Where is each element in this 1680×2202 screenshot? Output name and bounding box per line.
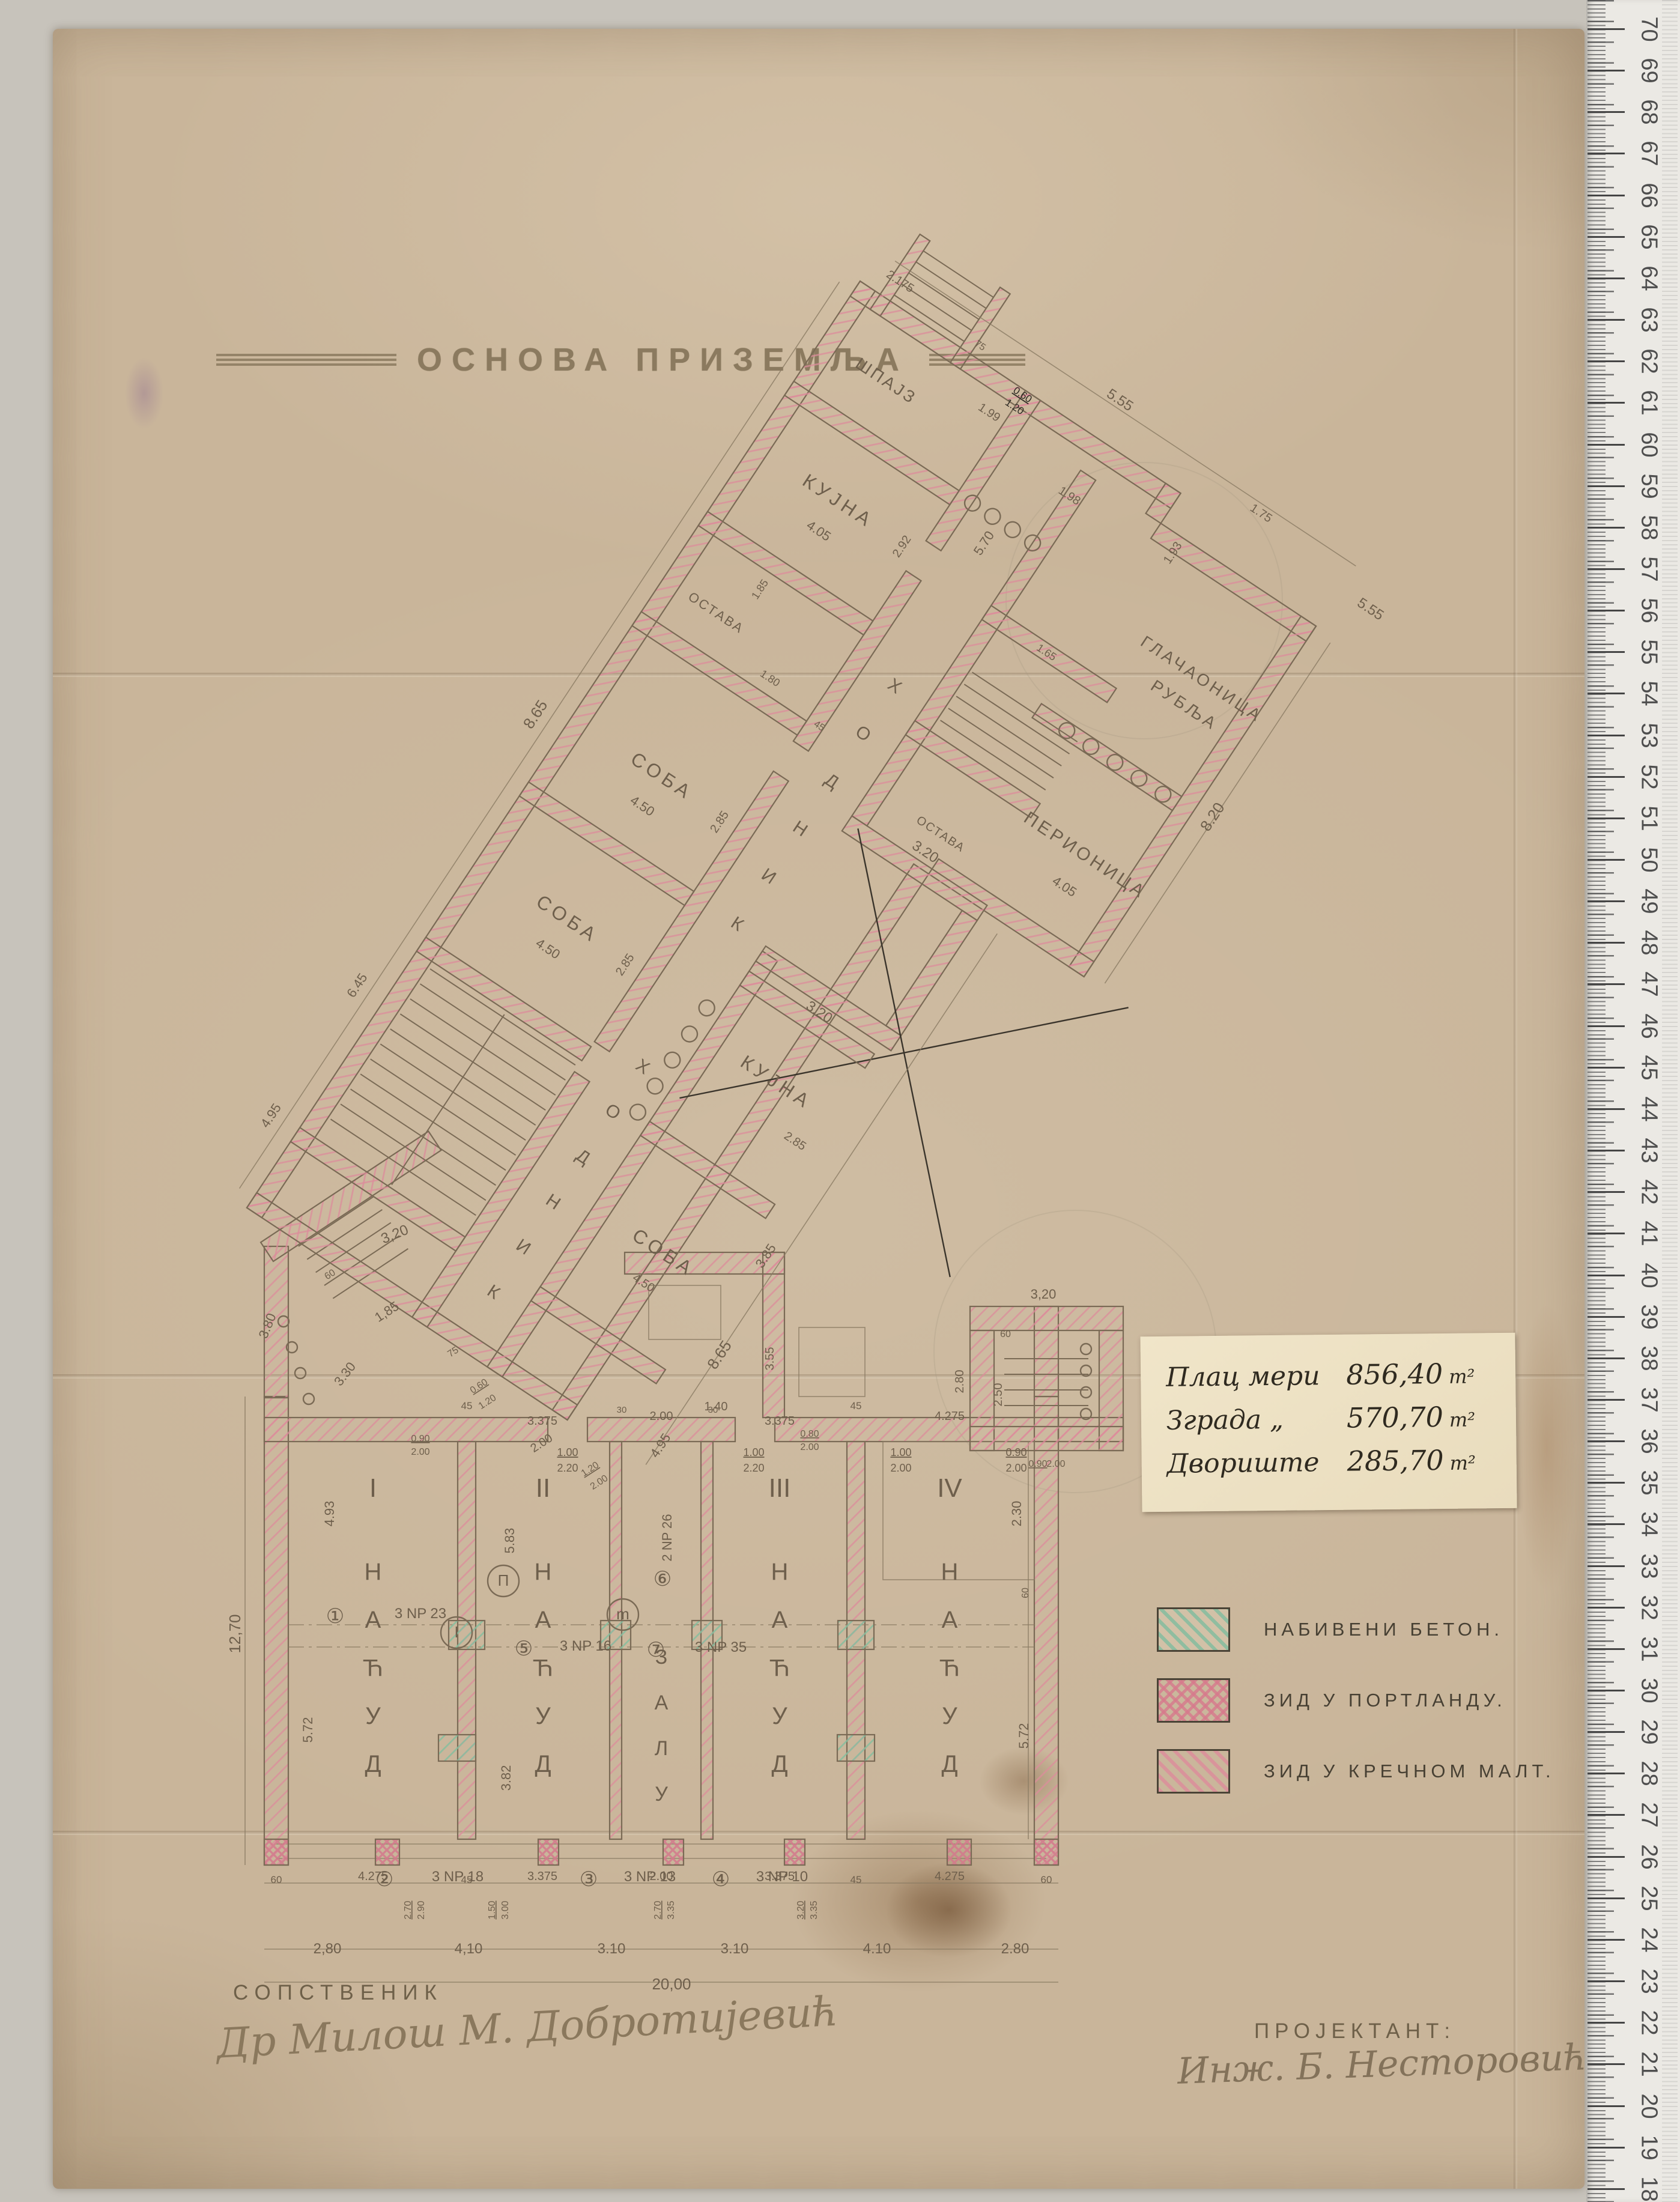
plan-dimension: 3.82 [499,1765,514,1791]
shop-number: I [369,1473,377,1503]
plan-dimension: 3.30 [331,1359,359,1389]
ruler-cm-tick [1588,1897,1625,1899]
room-label: Н [542,1190,564,1213]
area-unit: m² [1449,1408,1476,1431]
ruler-number: 56 [1636,593,1662,629]
ruler-number: 19 [1636,2129,1662,2165]
ruler-number: 57 [1636,551,1662,587]
room-label: Д [535,1751,551,1777]
area-value: 285,70 [1347,1444,1444,1478]
plan-dimension: 3 NP 23 [395,1606,446,1622]
ruler-number: 35 [1636,1465,1662,1501]
area-row: Двориште 285,70 m² [1166,1443,1496,1479]
ruler-cm-tick [1588,153,1625,154]
ruler-cm-tick [1588,651,1625,653]
plan-dimension: 2.00 [650,1410,673,1423]
plan-dimension: 4.95 [258,1100,284,1130]
ruler-number: 31 [1636,1631,1662,1667]
ruler-number: 64 [1636,260,1662,296]
plan-dimension: 1.50 [487,1900,497,1919]
plan-dimension: 0.60 [469,1377,490,1396]
ruler-cm-tick [1588,2188,1625,2190]
room-label: А [365,1607,381,1633]
plan-dimension: 5.72 [1016,1723,1031,1749]
ruler-cm-tick [1588,610,1625,611]
legend-label: ЗИД У ПОРТЛАНДУ. [1264,1690,1506,1711]
ruler-number: 47 [1636,966,1662,1002]
plan-dimension: 60 [1041,1874,1052,1885]
room-label: Ћ [363,1655,383,1681]
ruler-number: 52 [1636,759,1662,795]
ruler-cm-tick [1588,360,1625,362]
plan-dimension: ⑥ [654,1568,672,1591]
legend-swatch-lime [1157,1749,1230,1794]
ruler-number: 66 [1636,177,1662,213]
legend-label: НАБИВЕНИ БЕТОН. [1264,1619,1503,1640]
plan-dimension: ⑤ [515,1637,533,1660]
plan-dimension: 5.83 [502,1528,517,1554]
room-label: У [655,1783,668,1806]
plan-dimension: I [454,1623,458,1641]
legend-row: ЗИД У КРЕЧНОМ МАЛТ. [1157,1749,1555,1794]
room-label: Н [771,1559,789,1585]
room-label: К [484,1281,503,1303]
room-label: Х [632,1055,654,1079]
plan-dimension: 5.72 [300,1717,315,1743]
plan-dimension: 4.05 [804,517,834,544]
scanned-floor-plan-page: ОСНОВА ПРИЗЕМЉА [0,0,1680,2202]
ruler-number: 55 [1636,634,1662,670]
room-label: Н [789,817,811,840]
plan-dimension: 60 [323,1267,337,1282]
plan-dimension: 1.00 [743,1446,764,1458]
plan-dimension: 3.375 [765,1415,795,1428]
plan-dimension: 1.99 [976,401,1003,425]
plan-dimension: 8.65 [703,1337,735,1372]
ruler-number: 67 [1636,136,1662,172]
plan-dimension: 0.90 [1005,1446,1026,1458]
ruler-cm-tick [1588,1191,1625,1193]
room-label: Н [365,1559,382,1585]
ruler-number: 40 [1636,1257,1662,1293]
shop-number: IV [937,1473,962,1503]
plan-dimension: 30 [617,1405,627,1415]
ruler-cm-tick [1588,111,1625,113]
plan-dimension: 1.00 [557,1446,578,1458]
ruler-cm-tick [1588,1773,1625,1774]
ruler-number: 26 [1636,1839,1662,1875]
ruler-number: 46 [1636,1008,1662,1044]
ruler-number: 54 [1636,676,1662,712]
plan-dimension: 2.00 [589,1473,610,1492]
ruler-cm-tick [1588,70,1625,71]
ruler-cm-tick [1588,2063,1625,2065]
ruler-number: 28 [1636,1756,1662,1792]
room-label: Л [655,1737,668,1760]
ruler-number: 36 [1636,1424,1662,1460]
ruler-number: 61 [1636,385,1662,421]
plan-dimension: ① [326,1605,344,1628]
plan-dimension: 1.00 [890,1446,911,1458]
plan-dimension: 3.375 [527,1415,557,1428]
room-label: К [727,913,747,935]
ruler-cm-tick [1588,2022,1625,2024]
plan-dimension: 1.80 [758,667,782,689]
plan-dimension: 2.00 [890,1462,911,1474]
ruler-cm-tick [1588,1108,1625,1110]
ruler-number: 37 [1636,1382,1662,1418]
plan-dimension: ③ [580,1868,598,1891]
plan-dimension: 3.375 [765,1870,795,1883]
area-label: Двориште [1166,1447,1347,1479]
area-unit: m² [1449,1365,1475,1388]
ruler-cm-tick [1588,1399,1625,1401]
ruler-cm-tick [1588,942,1625,944]
ruler-number: 25 [1636,1880,1662,1916]
plan-dimension: 8.65 [520,697,551,732]
ruler-cm-tick [1588,983,1625,985]
plan-dimension: 3.20 [796,1900,806,1919]
plan-dimension: 3 NP 16 [560,1638,611,1654]
plan-dimension: 2.00 [411,1447,429,1457]
plan-dimension: 4.93 [322,1501,337,1527]
room-label: У [535,1703,551,1729]
shop-number: II [536,1473,550,1503]
ruler-cm-tick [1588,527,1625,529]
ruler-cm-tick [1588,28,1625,30]
plan-dimension: 4.275 [935,1870,965,1883]
plan-dimension: 2.00 [1005,1462,1026,1474]
plan-dimension: 3.10 [721,1941,749,1957]
plan-dimension: 4.05 [1050,873,1080,899]
room-label: У [772,1703,787,1729]
area-value: 570,70 [1347,1401,1444,1434]
area-label: Зграда „ [1166,1404,1347,1436]
ruler-cm-tick [1588,1565,1625,1567]
scanner-ruler: 7069686766656463626160595857565554535251… [1586,0,1680,2202]
plan-dimension: 3.10 [598,1941,626,1957]
plan-dimension: 2.20 [557,1462,578,1474]
plan-dimension: 2.80 [1001,1941,1030,1957]
ruler-number: 62 [1636,344,1662,380]
ruler-number: 30 [1636,1673,1662,1709]
ruler-number: 21 [1636,2046,1662,2082]
plan-dimension: 3,20 [378,1222,410,1248]
ruler-number: 42 [1636,1174,1662,1210]
plan-dimension: 2.85 [781,1129,808,1153]
ruler-number: 53 [1636,717,1662,753]
room-label: ОСТАВА [685,589,747,637]
ruler-cm-tick [1588,1939,1625,1941]
ruler-number: 50 [1636,842,1662,878]
plan-dimension: 4.275 [358,1870,388,1883]
ruler-number: 68 [1636,94,1662,130]
plan-dimension: 2.85 [708,808,732,836]
room-label: Д [365,1751,381,1777]
plan-dimension: 6.45 [344,971,370,1001]
ruler-number: 48 [1636,925,1662,961]
ruler-number: 33 [1636,1548,1662,1584]
legend-row: НАБИВЕНИ БЕТОН. [1157,1607,1555,1652]
room-label: А [942,1607,958,1633]
plan-dimension: 45 [461,1874,473,1885]
ruler-number: 24 [1636,1921,1662,1958]
plan-dimension: 2.70 [403,1900,413,1919]
ruler-cm-tick [1588,485,1625,487]
plan-dimension: 3.00 [500,1900,511,1919]
plan-dimension: 3.55 [763,1347,777,1371]
ruler-cm-tick [1588,1150,1625,1151]
room-label: А [772,1607,788,1633]
plan-dimension: 45 [851,1874,862,1885]
ruler-number: 29 [1636,1714,1662,1750]
ruler-number: 27 [1636,1797,1662,1833]
room-label: Ћ [939,1655,960,1681]
ruler-number: 39 [1636,1299,1662,1335]
ruler-cm-tick [1588,1233,1625,1234]
plan-dimension: 1.85 [749,577,771,601]
ruler-cm-tick [1588,1814,1625,1816]
plan-dimension: 2.20 [743,1462,764,1474]
ruler-number: 45 [1636,1049,1662,1085]
plan-dimension: 3.35 [666,1900,676,1919]
plan-dimension: 1.40 [705,1400,728,1413]
ruler-number: 34 [1636,1506,1662,1542]
ruler-cm-tick [1588,1690,1625,1691]
plan-dimension: 2.70 [653,1900,663,1919]
plan-dimension: 2.00 [1046,1459,1065,1469]
plan-dimension: 2.90 [416,1900,426,1919]
ruler-cm-tick [1588,195,1625,196]
plan-dimension: 2.80 [953,1370,966,1394]
plan-dimension: 0.80 [800,1429,819,1439]
ruler-cm-tick [1588,1357,1625,1359]
ruler-cm-tick [1588,1316,1625,1318]
plan-dimension: 12,70 [226,1614,244,1653]
ruler-number: 23 [1636,1964,1662,2000]
ruler-cm-tick [1588,1523,1625,1525]
plan-dimension: 2.50 [992,1383,1005,1407]
ruler-number: 32 [1636,1589,1662,1625]
plan-dimension: 4.10 [863,1941,891,1957]
plan-dimension: 4.275 [935,1410,965,1423]
room-label: Х [884,675,905,698]
room-label: А [655,1691,669,1714]
ruler-number: 38 [1636,1340,1662,1376]
ruler-cm-tick [1588,1731,1625,1733]
ruler-cm-tick [1588,1980,1625,1982]
room-label: Ћ [769,1655,790,1681]
room-label: И [512,1235,534,1258]
room-label: ШПАЈЗ [852,354,920,408]
ruler-cm-tick [1588,1482,1625,1484]
ruler-cm-tick [1588,319,1625,321]
plan-dimension: 1.20 [580,1460,601,1479]
plan-dimension: 0.90 [1028,1459,1047,1469]
ruler-number: 60 [1636,426,1662,463]
ruler-cm-tick [1588,776,1625,778]
plan-dimension: 5.70 [971,528,997,558]
ruler-number: 69 [1636,53,1662,89]
ruler-ghost-ticks [1662,0,1678,2202]
ruler-number: 59 [1636,468,1662,504]
plan-dimension: 2.92 [890,533,914,560]
plan-dimension: 60 [1000,1329,1011,1339]
ruler-number: 18 [1636,2171,1662,2202]
room-label: У [365,1703,381,1729]
plan-dimension: 4,10 [455,1941,483,1957]
plan-dimension: 3 NP 35 [695,1639,747,1655]
area-value: 856,40 [1346,1357,1443,1391]
ruler-cm-tick [1588,2147,1625,2149]
plan-dimension: 2,80 [314,1941,342,1957]
ruler-number: 43 [1636,1133,1662,1169]
ruler-number: 65 [1636,219,1662,255]
ruler-cm-tick [1588,817,1625,819]
area-label: Плац мери [1166,1360,1347,1393]
room-label: Д [941,1751,957,1777]
room-label: ПЕРИОНИЦА [1020,808,1150,903]
legend-row: ЗИД У ПОРТЛАНДУ. [1157,1678,1555,1723]
shop-number: III [769,1473,791,1503]
legend-swatch-portland [1157,1678,1230,1723]
owner-label: СОПСТВЕНИК [233,1981,443,2005]
ruler-cm-tick [1588,859,1625,861]
ruler-cm-tick [1588,402,1625,404]
plan-dimension: 4.50 [628,792,658,819]
ruler-number: 20 [1636,2088,1662,2124]
ruler-cm-tick [1588,278,1625,279]
floor-plan-drawing: ШПАЈЗКУЈНА4.05ОСТАВАСОБА4.50СОБА4.50ГЛАЧ… [0,0,1680,2202]
room-label: Ћ [533,1655,553,1681]
room-label: Н [535,1559,552,1585]
ruler-cm-tick [1588,735,1625,736]
area-row: Плац мери 856,40 m² [1166,1357,1496,1393]
legend-swatch-concrete [1157,1607,1230,1652]
room-label: И [758,864,780,888]
ruler-cm-tick [1588,1440,1625,1442]
ruler-number: 49 [1636,884,1662,920]
ruler-number: 63 [1636,302,1662,338]
ruler-number: 51 [1636,800,1662,836]
ruler-number: 44 [1636,1091,1662,1127]
area-note-card: Плац мери 856,40 m² Зграда „ 570,70 m² Д… [1140,1333,1517,1512]
plan-dimension: 1.75 [1248,502,1275,526]
plan-dimension: 3,20 [1031,1287,1057,1302]
plan-dimension: 3.375 [527,1870,557,1883]
ruler-cm-tick [1588,2105,1625,2107]
room-label: Д [572,1145,593,1169]
ruler-cm-tick [1588,236,1625,238]
designer-label: ПРОЈЕКТАНТ: [1254,2019,1455,2043]
ruler-number: 70 [1636,11,1662,47]
ruler-cm-tick [1588,900,1625,902]
ruler-cm-tick [1588,693,1625,694]
plan-dimension: 3 NP 18 [432,1869,484,1885]
ruler-cm-tick [1588,1275,1625,1276]
materials-legend: НАБИВЕНИ БЕТОН.ЗИД У ПОРТЛАНДУ.ЗИД У КРЕ… [1157,1607,1555,1820]
room-label: У [942,1703,957,1729]
plan-dimension: 5.55 [1354,595,1387,623]
plan-dimension: 0.90 [411,1434,429,1444]
plan-dimension: 60 [1020,1588,1031,1598]
ruler-number: 58 [1636,509,1662,545]
ruler-cm-tick [1588,444,1625,446]
room-label: А [535,1607,551,1633]
plan-dimension: 2.00 [650,1870,673,1883]
plan-dimension: 60 [271,1874,282,1885]
plan-dimension: 2.30 [1009,1501,1024,1527]
area-unit: m² [1449,1451,1476,1474]
plan-dimension: 45 [851,1400,862,1412]
plan-dimension: 4.50 [533,935,563,962]
room-label: Н [941,1559,959,1585]
ruler-cm-tick [1588,568,1625,570]
legend-label: ЗИД У КРЕЧНОМ МАЛТ. [1264,1761,1555,1782]
plan-dimension: 20,00 [652,1975,691,1993]
plan-dimension: 1.20 [477,1393,498,1412]
plan-dimension: П [498,1571,509,1589]
ruler-5mm-ticks [1588,0,1614,2202]
area-row: Зграда „ 570,70 m² [1166,1400,1496,1436]
plan-dimension: ④ [712,1868,730,1891]
ruler-cm-tick [1588,1067,1625,1069]
room-label: О [852,721,875,745]
plan-dimension: m [616,1605,629,1623]
room-label: Д [821,769,842,793]
ruler-number: 22 [1636,2005,1662,2041]
plan-dimension: ⑦ [647,1639,665,1661]
ruler-cm-tick [1588,1607,1625,1609]
ruler-cm-tick [1588,1856,1625,1858]
ruler-cm-tick [1588,1648,1625,1650]
plan-dimension: 2.00 [800,1442,819,1452]
room-label: О [601,1100,624,1124]
plan-dimension: 2 NP 26 [660,1514,675,1561]
plan-dimension: 2.85 [613,951,637,978]
room-label: Д [771,1751,787,1777]
ruler-number: 41 [1636,1216,1662,1252]
plan-dimension: 3.35 [809,1900,819,1919]
plan-dimension: 45 [461,1400,473,1412]
ruler-cm-tick [1588,1025,1625,1027]
